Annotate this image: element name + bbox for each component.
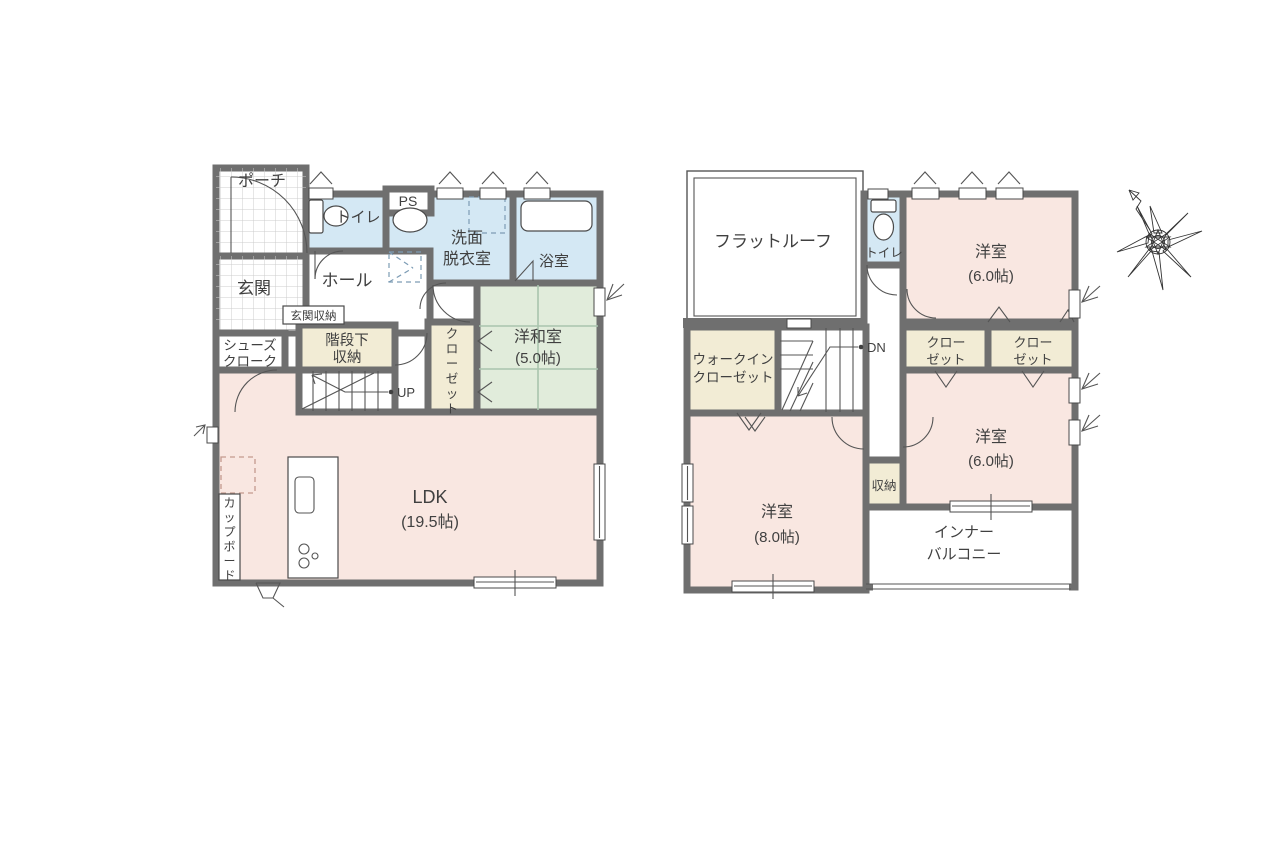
label-bath: 浴室 [539, 253, 569, 270]
label-hall: ホール [322, 271, 373, 290]
label-bedroom-a-size: (6.0帖) [968, 268, 1014, 285]
label-wic-1: ウォークイン [693, 352, 774, 367]
label-bedroom-a: 洋室 [975, 243, 1007, 261]
room-bedroom-b [687, 413, 866, 590]
label-toilet-1f: トイレ [335, 209, 380, 226]
toilet-icon-2f [871, 200, 896, 240]
label-closet-left-1: クロー [926, 335, 965, 350]
label-ldk-size: (19.5帖) [401, 513, 459, 531]
label-cupboard: カップボード [223, 496, 235, 583]
label-flat-roof: フラットルーフ [714, 232, 832, 251]
label-genkan-storage: 玄関収納 [291, 309, 337, 323]
label-toilet-2f: トイレ [865, 246, 903, 260]
label-closet-right-2: ゼット [1013, 352, 1052, 367]
label-bedroom-c: 洋室 [975, 428, 1007, 446]
label-under-stairs-1: 階段下 [325, 332, 369, 349]
label-bedroom-b: 洋室 [761, 503, 793, 521]
label-wic-2: クローゼット [693, 370, 774, 385]
label-under-stairs-2: 収納 [333, 349, 362, 366]
label-bedroom-b-size: (8.0帖) [754, 529, 800, 546]
label-washitsu-size: (5.0帖) [515, 350, 561, 367]
compass-icon [1117, 190, 1202, 290]
label-shoes-1: シューズ [223, 338, 276, 353]
sink-icon [393, 208, 427, 232]
label-balcony-1: インナー [934, 524, 994, 541]
label-ps: PS [399, 193, 418, 209]
balcony-open-edge [866, 579, 1071, 594]
bathtub-icon [521, 201, 592, 231]
up-dot [389, 390, 394, 395]
floor-plan-drawing: ポーチ 玄関 トイレ PS 洗面 脱衣室 浴室 ホール 玄関収納 シューズ クロ… [0, 0, 1280, 861]
floor-plan-page: ポーチ 玄関 トイレ PS 洗面 脱衣室 浴室 ホール 玄関収納 シューズ クロ… [0, 0, 1280, 861]
label-porch: ポーチ [238, 172, 286, 190]
label-closet-1f: クローゼット [446, 327, 459, 416]
dn-dot [859, 345, 864, 350]
label-up: UP [397, 385, 415, 400]
label-closet-left-2: ゼット [926, 352, 965, 367]
floor1: ポーチ 玄関 トイレ PS 洗面 脱衣室 浴室 ホール 玄関収納 シューズ クロ… [194, 168, 624, 607]
label-balcony-2: バルコニー [927, 546, 1002, 563]
label-bedroom-c-size: (6.0帖) [968, 453, 1014, 470]
label-storage-2f: 収納 [871, 479, 896, 493]
label-shoes-2: クローク [223, 354, 277, 369]
label-closet-right-1: クロー [1013, 335, 1052, 350]
label-dn: DN [867, 340, 886, 355]
kitchen-island [288, 457, 338, 578]
label-senmen-1: 洗面 [451, 229, 483, 247]
label-washitsu: 洋和室 [514, 328, 562, 346]
label-senmen-2: 脱衣室 [443, 250, 491, 268]
floor2: フラットルーフ トイレ 洋室 (6.0帖) ウォークイン クローゼット DN ク… [682, 171, 1100, 599]
label-genkan: 玄関 [237, 279, 271, 298]
label-ldk: LDK [412, 487, 447, 507]
